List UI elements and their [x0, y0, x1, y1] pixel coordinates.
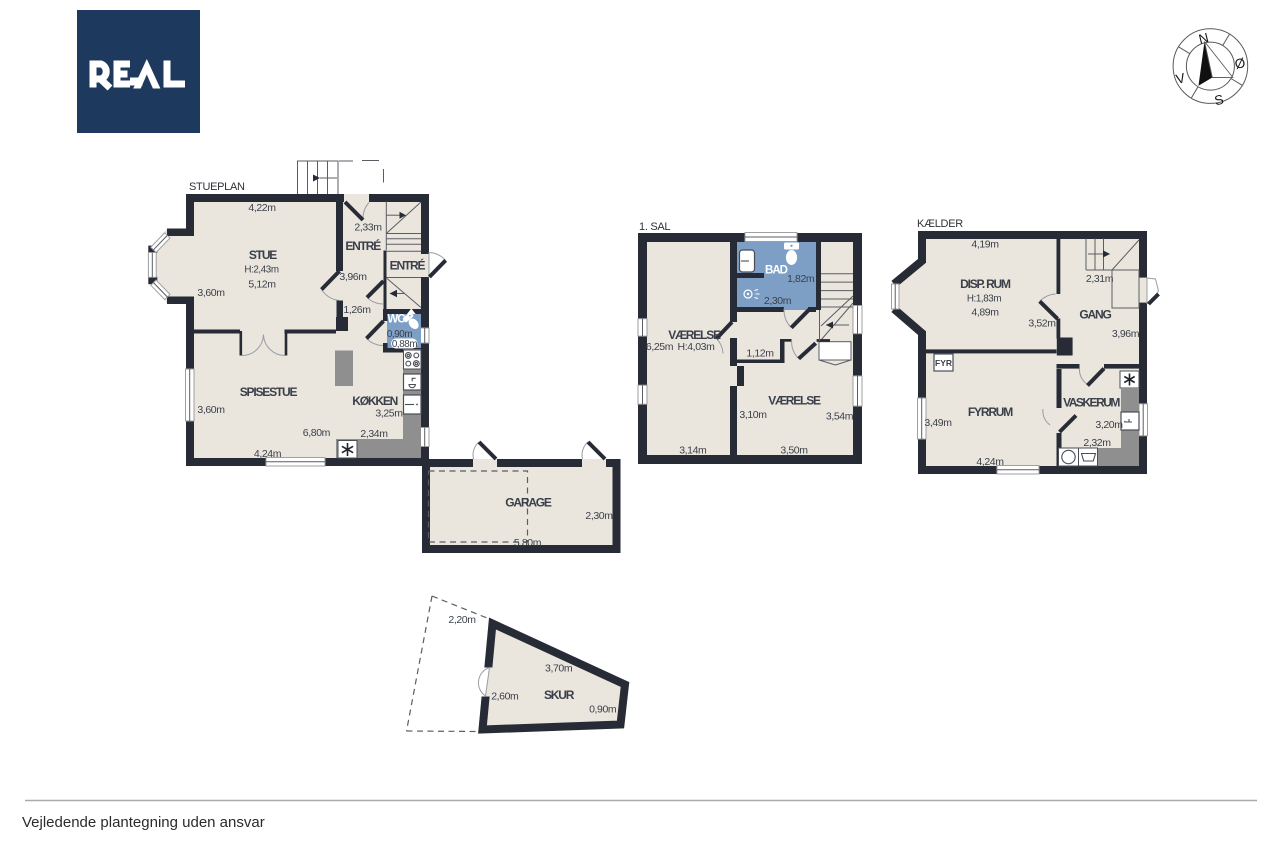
svg-text:FYRRUM: FYRRUM: [968, 405, 1013, 419]
svg-text:GANG: GANG: [1079, 308, 1111, 322]
svg-text:VÆRELSE: VÆRELSE: [668, 328, 721, 342]
svg-text:2,34m: 2,34m: [360, 428, 388, 440]
svg-text:WC: WC: [387, 314, 405, 326]
svg-text:1,12m: 1,12m: [746, 348, 774, 360]
svg-text:3,70m: 3,70m: [545, 663, 573, 675]
svg-text:4,22m: 4,22m: [248, 202, 276, 214]
svg-text:6,25m: 6,25m: [646, 341, 674, 353]
svg-text:VASKERUM: VASKERUM: [1063, 396, 1120, 410]
svg-text:5,12m: 5,12m: [248, 279, 276, 291]
svg-text:6,80m: 6,80m: [303, 427, 331, 439]
svg-text:Ø: Ø: [1233, 55, 1247, 72]
svg-text:ENTRÉ: ENTRÉ: [390, 258, 426, 273]
svg-text:2,30m: 2,30m: [585, 510, 613, 522]
svg-text:0,88m: 0,88m: [392, 339, 417, 350]
svg-text:VÆRELSE: VÆRELSE: [768, 394, 821, 408]
svg-text:3,54m: 3,54m: [826, 410, 854, 422]
svg-text:3,96m: 3,96m: [1112, 328, 1140, 340]
svg-text:2,32m: 2,32m: [1083, 437, 1111, 449]
svg-text:BAD: BAD: [765, 265, 788, 277]
svg-text:3,96m: 3,96m: [339, 271, 367, 283]
svg-text:ENTRÉ: ENTRÉ: [345, 238, 381, 253]
svg-text:FYR: FYR: [935, 358, 952, 368]
svg-text:4,19m: 4,19m: [971, 239, 999, 251]
svg-text:1,26m: 1,26m: [343, 304, 371, 316]
svg-text:4,89m: 4,89m: [971, 307, 999, 319]
svg-text:0,90m: 0,90m: [589, 704, 617, 716]
svg-text:S: S: [1213, 92, 1225, 109]
svg-text:5,80m: 5,80m: [514, 537, 542, 549]
svg-text:3,10m: 3,10m: [739, 409, 767, 421]
svg-text:Vejledende plantegning uden an: Vejledende plantegning uden ansvar: [22, 814, 265, 831]
svg-text:H:4,03m: H:4,03m: [678, 341, 716, 353]
svg-text:2,33m: 2,33m: [354, 222, 382, 234]
svg-text:V: V: [1174, 70, 1186, 87]
svg-text:SKUR: SKUR: [544, 688, 575, 702]
svg-text:2,30m: 2,30m: [764, 295, 792, 307]
svg-text:2,20m: 2,20m: [448, 614, 476, 626]
svg-text:SPISESTUE: SPISESTUE: [240, 385, 298, 399]
svg-text:4,24m: 4,24m: [254, 448, 282, 460]
svg-text:STUE: STUE: [249, 248, 277, 262]
svg-text:3,14m: 3,14m: [679, 445, 707, 457]
svg-text:KÆLDER: KÆLDER: [917, 218, 963, 230]
svg-text:2,60m: 2,60m: [491, 691, 519, 703]
svg-text:2,31m: 2,31m: [1086, 273, 1114, 285]
svg-text:3,50m: 3,50m: [780, 445, 808, 457]
svg-text:3,60m: 3,60m: [197, 404, 225, 416]
svg-text:GARAGE: GARAGE: [505, 496, 552, 510]
svg-text:DISP. RUM: DISP. RUM: [960, 277, 1011, 291]
svg-text:H:2,43m: H:2,43m: [244, 265, 278, 276]
svg-text:3,49m: 3,49m: [924, 417, 952, 429]
svg-text:KØKKEN: KØKKEN: [352, 394, 397, 408]
svg-text:1,82m: 1,82m: [787, 273, 815, 285]
svg-text:3,60m: 3,60m: [197, 287, 225, 299]
svg-text:1. SAL: 1. SAL: [639, 221, 670, 233]
svg-text:STUEPLAN: STUEPLAN: [189, 181, 245, 193]
svg-text:3,25m: 3,25m: [375, 408, 403, 420]
svg-text:3,20m: 3,20m: [1095, 419, 1123, 431]
svg-text:4,24m: 4,24m: [976, 456, 1004, 468]
svg-text:H:1,83m: H:1,83m: [967, 294, 1001, 305]
svg-text:3,52m: 3,52m: [1028, 318, 1056, 330]
